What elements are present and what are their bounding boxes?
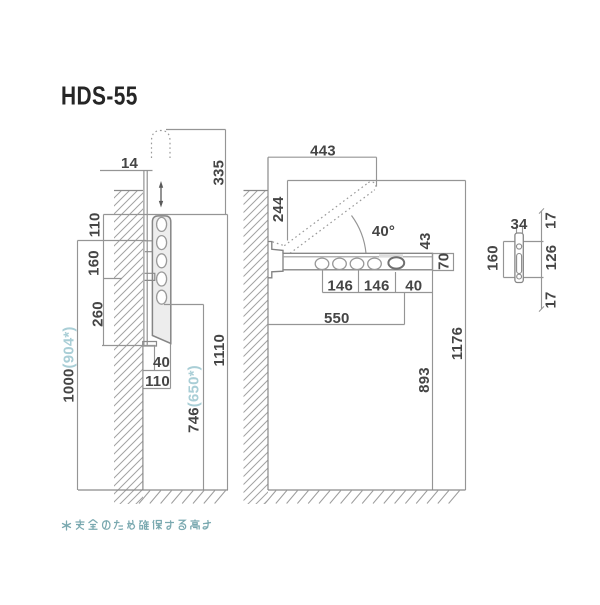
- svg-text:34: 34: [510, 216, 528, 233]
- svg-text:260: 260: [90, 301, 107, 327]
- svg-text:335: 335: [211, 160, 228, 186]
- svg-text:HDS-55: HDS-55: [61, 82, 138, 110]
- svg-text:1000(904*): 1000(904*): [61, 326, 78, 402]
- svg-text:550: 550: [324, 310, 350, 327]
- svg-text:43: 43: [417, 232, 434, 249]
- svg-text:110: 110: [87, 212, 104, 237]
- svg-text:893: 893: [416, 367, 433, 393]
- svg-text:17: 17: [543, 291, 560, 308]
- svg-text:17: 17: [543, 212, 560, 229]
- svg-text:160: 160: [86, 250, 103, 276]
- svg-text:1176: 1176: [449, 327, 466, 360]
- svg-text:1110: 1110: [211, 334, 228, 367]
- svg-text:146: 146: [327, 278, 353, 295]
- svg-text:14: 14: [121, 155, 139, 172]
- svg-text:160: 160: [485, 245, 502, 271]
- svg-text:40°: 40°: [372, 223, 395, 240]
- svg-text:126: 126: [543, 245, 560, 271]
- svg-text:40: 40: [405, 278, 422, 295]
- svg-text:244: 244: [270, 196, 287, 222]
- svg-text:110: 110: [145, 373, 170, 390]
- svg-text:746(650*): 746(650*): [186, 365, 203, 433]
- svg-text:443: 443: [310, 143, 336, 160]
- svg-text:146: 146: [364, 278, 390, 295]
- svg-text:70: 70: [436, 253, 453, 270]
- svg-text:40: 40: [153, 354, 170, 371]
